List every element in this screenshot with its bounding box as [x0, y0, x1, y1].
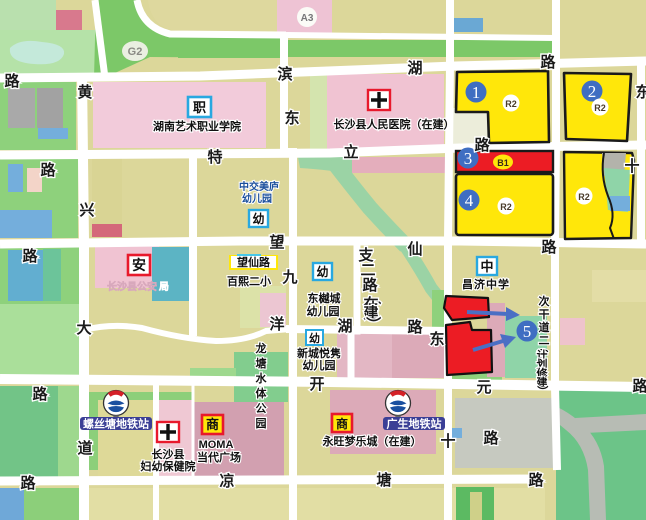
- svg-text:百熙二小: 百熙二小: [227, 274, 271, 288]
- svg-text:湖南艺术职业学院: 湖南艺术职业学院: [153, 119, 241, 133]
- svg-text:G2: G2: [128, 46, 143, 58]
- svg-text:东: 东: [429, 330, 444, 348]
- svg-text:幼儿园: 幼儿园: [307, 304, 340, 318]
- svg-text:十: 十: [440, 432, 455, 450]
- svg-text:长沙县公安: 长沙县公安: [107, 280, 157, 293]
- svg-text:R2: R2: [578, 192, 590, 202]
- svg-text:路: 路: [541, 238, 557, 256]
- svg-text:MOMA: MOMA: [199, 439, 234, 451]
- svg-text:特: 特: [207, 148, 222, 166]
- svg-text:幼儿园: 幼儿园: [242, 192, 272, 205]
- svg-text:洋: 洋: [269, 315, 284, 333]
- svg-text:安: 安: [132, 257, 146, 273]
- svg-text:干: 干: [539, 308, 550, 321]
- svg-text:湖: 湖: [407, 60, 422, 77]
- svg-text:东: 东: [635, 83, 646, 101]
- svg-text:公: 公: [256, 402, 267, 415]
- svg-text:）: ）: [536, 386, 549, 397]
- svg-text:中交美庐: 中交美庐: [239, 180, 279, 193]
- svg-text:立: 立: [343, 143, 358, 161]
- svg-text:开: 开: [309, 376, 324, 393]
- svg-text:塘: 塘: [256, 356, 267, 370]
- svg-text:大: 大: [76, 319, 91, 337]
- svg-text:2: 2: [588, 82, 597, 101]
- svg-text:九: 九: [281, 268, 297, 286]
- svg-text:水: 水: [256, 371, 268, 385]
- svg-text:路: 路: [483, 429, 499, 447]
- svg-text:路: 路: [32, 385, 48, 403]
- svg-text:塘: 塘: [376, 471, 391, 489]
- svg-text:黄: 黄: [77, 83, 92, 101]
- svg-text:仙: 仙: [407, 240, 422, 258]
- svg-text:兴: 兴: [79, 202, 94, 219]
- svg-text:十: 十: [624, 157, 639, 175]
- svg-text:路: 路: [540, 53, 556, 71]
- svg-text:中: 中: [480, 259, 493, 274]
- svg-text:道: 道: [77, 439, 92, 457]
- svg-text:长沙县: 长沙县: [152, 447, 185, 461]
- svg-text:元: 元: [476, 379, 491, 396]
- svg-text:商: 商: [336, 416, 348, 431]
- svg-text:望仙路: 望仙路: [237, 255, 271, 269]
- svg-text:当代广场: 当代广场: [197, 450, 241, 464]
- svg-text:园: 园: [256, 417, 267, 430]
- svg-text:路: 路: [474, 136, 490, 154]
- svg-text:路: 路: [40, 161, 56, 179]
- svg-text:1: 1: [472, 83, 481, 102]
- svg-text:滨: 滨: [277, 65, 292, 83]
- svg-text:路: 路: [528, 471, 544, 489]
- svg-text:昌济中学: 昌济中学: [462, 277, 510, 291]
- svg-text:东樾城: 东樾城: [308, 291, 341, 305]
- svg-text:A3: A3: [301, 13, 314, 24]
- svg-text:龙: 龙: [255, 341, 267, 355]
- svg-text:3: 3: [464, 149, 473, 168]
- svg-text:4: 4: [465, 191, 474, 210]
- svg-text:螺丝塘地铁站: 螺丝塘地铁站: [83, 417, 149, 431]
- svg-text:路: 路: [407, 318, 423, 336]
- svg-text:R2: R2: [594, 103, 606, 113]
- svg-text:路: 路: [20, 474, 36, 492]
- svg-text:路: 路: [632, 377, 646, 395]
- svg-text:R2: R2: [505, 99, 517, 109]
- svg-text:广生地铁站: 广生地铁站: [387, 417, 442, 431]
- svg-text:）: ）: [364, 316, 382, 331]
- svg-text:R2: R2: [500, 202, 512, 212]
- svg-text:望: 望: [269, 233, 284, 251]
- svg-text:凉: 凉: [219, 472, 234, 490]
- svg-text:幼儿园: 幼儿园: [303, 358, 336, 372]
- svg-text:幼: 幼: [252, 211, 264, 226]
- svg-text:职: 职: [193, 100, 206, 115]
- svg-text:路: 路: [22, 247, 38, 265]
- svg-text:5: 5: [523, 322, 532, 341]
- svg-text:路: 路: [4, 72, 20, 90]
- svg-text:次: 次: [539, 294, 550, 308]
- svg-text:商: 商: [206, 417, 219, 432]
- svg-text:永旺梦乐城（在建）: 永旺梦乐城（在建）: [322, 434, 422, 448]
- svg-text:幼: 幼: [316, 264, 328, 279]
- svg-text:幼: 幼: [309, 331, 320, 345]
- svg-text:湖: 湖: [337, 318, 352, 335]
- svg-text:新城悦隽: 新城悦隽: [297, 346, 341, 360]
- svg-text:东: 东: [284, 109, 299, 127]
- svg-text:B1: B1: [497, 158, 509, 168]
- svg-text:妇幼保健院: 妇幼保健院: [140, 459, 196, 473]
- svg-text:长沙县人民医院（在建）: 长沙县人民医院（在建）: [334, 117, 455, 131]
- svg-text:体: 体: [256, 386, 268, 400]
- svg-text:局: 局: [158, 281, 169, 293]
- svg-text:道: 道: [539, 320, 550, 334]
